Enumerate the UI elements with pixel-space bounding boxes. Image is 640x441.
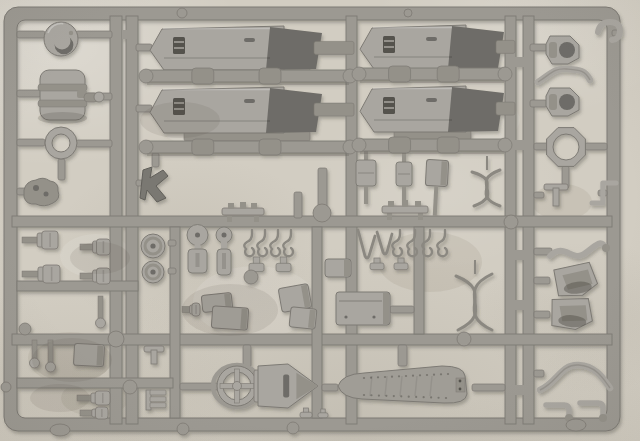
gate-pad: [404, 9, 412, 17]
gate-stub: [534, 192, 544, 198]
gate-pad: [566, 419, 586, 431]
s-strip: [540, 365, 610, 390]
grime: [32, 338, 112, 382]
lever-1: [187, 225, 208, 274]
cupola: [44, 22, 78, 56]
connector-bar: [356, 68, 508, 80]
gate-pad: [313, 204, 331, 222]
gate-stub: [585, 143, 607, 150]
gate-pad: [457, 332, 471, 346]
grime: [70, 242, 130, 274]
spring-hooks-1: [244, 230, 293, 256]
gate-pad: [1, 382, 11, 392]
gate-pad: [287, 422, 299, 434]
gate-stub: [168, 240, 176, 246]
gun-carriage: [254, 364, 318, 408]
fuel-tank: [336, 292, 390, 325]
gate-stub: [17, 139, 45, 146]
fender-hook-1: [546, 36, 579, 64]
box-6: [325, 259, 351, 277]
octagon-ring: [547, 128, 586, 167]
gate-stub: [168, 268, 176, 274]
gate-stub: [534, 277, 550, 284]
runner-tie: [515, 250, 524, 260]
bolt-3: [22, 265, 60, 283]
grime: [30, 384, 90, 412]
box-4: [289, 307, 317, 330]
gate-pad: [244, 270, 258, 284]
gate-pad: [177, 423, 189, 435]
road-wheel-1: [141, 234, 165, 258]
exhaust-drum: [38, 70, 104, 124]
gate-stub: [17, 90, 41, 97]
sprue-photo: [0, 0, 640, 441]
damper-1: [356, 151, 376, 204]
grime: [140, 102, 220, 138]
runner: [170, 227, 180, 418]
grime: [182, 284, 278, 336]
runner-tie: [122, 30, 127, 39]
s-arm: [550, 243, 610, 256]
connector-bar: [143, 141, 353, 153]
small-lump: [24, 178, 59, 206]
runner: [12, 216, 612, 227]
gate-stub: [530, 44, 547, 51]
gate-stub: [390, 306, 414, 313]
nub-1: [300, 408, 312, 418]
gate-stub: [398, 345, 407, 366]
connector-bar: [143, 70, 353, 82]
runner-tie: [515, 300, 524, 310]
cap-1: [249, 257, 264, 272]
gate-stub: [17, 31, 45, 38]
gate-pad: [123, 380, 137, 394]
road-wheel-2: [142, 261, 164, 283]
sprue-scene: [0, 0, 640, 441]
scoop-2: [550, 295, 595, 331]
runner-tie: [515, 140, 524, 150]
gate-pad: [504, 215, 518, 229]
gate-stub: [472, 384, 505, 391]
lever-2: [216, 227, 232, 275]
fender-hook-2: [546, 88, 579, 116]
runner: [17, 281, 138, 291]
gate-stub: [534, 370, 544, 377]
gate-pad: [19, 323, 31, 335]
scoop-1: [553, 262, 598, 298]
gate-stub: [534, 311, 550, 318]
curved-strip: [538, 69, 590, 82]
t-bracket-l: [144, 346, 164, 364]
runner: [17, 378, 173, 388]
pin-1: [96, 296, 106, 328]
runner-tie: [515, 57, 524, 67]
tow-wire-1: [472, 156, 500, 206]
gate-pad: [108, 331, 124, 347]
gate-stub: [76, 31, 112, 38]
e-bracket-l: [146, 390, 166, 410]
gate-stub: [322, 384, 338, 391]
hatch-ring: [45, 127, 77, 159]
wire-loop: [358, 230, 392, 258]
gate-pad: [177, 8, 187, 18]
k-part: [140, 167, 168, 202]
runner-tie: [515, 385, 524, 395]
damper-2: [396, 153, 412, 202]
connector-bar: [356, 139, 508, 151]
cap-2: [276, 257, 291, 272]
gate-stub: [58, 159, 65, 180]
gate-pad: [50, 424, 70, 436]
gate-stub: [76, 140, 112, 147]
gate-stub: [294, 192, 302, 218]
gate-stub: [530, 100, 547, 107]
bolt-1: [22, 231, 58, 249]
